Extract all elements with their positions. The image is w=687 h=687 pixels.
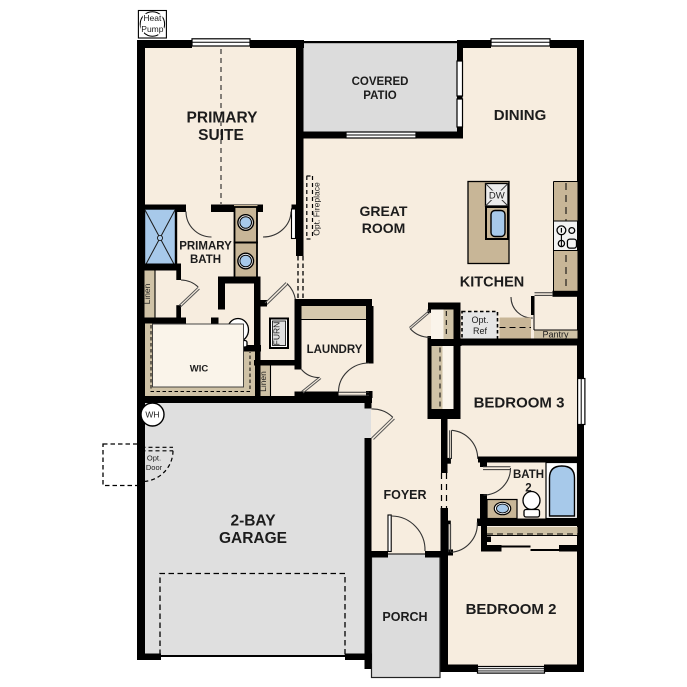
svg-text:LAUNDRY: LAUNDRY: [307, 344, 363, 356]
svg-text:ROOM: ROOM: [362, 220, 406, 236]
svg-text:BATH: BATH: [513, 469, 544, 481]
svg-text:PRIMARY: PRIMARY: [179, 241, 232, 253]
svg-text:BATH: BATH: [190, 254, 221, 266]
svg-text:BEDROOM 2: BEDROOM 2: [466, 601, 557, 618]
svg-text:PATIO: PATIO: [363, 90, 396, 102]
svg-text:FOYER: FOYER: [383, 488, 426, 502]
svg-text:Heat: Heat: [143, 13, 162, 23]
svg-text:Linen: Linen: [142, 283, 152, 304]
svg-text:WH: WH: [145, 410, 159, 420]
svg-text:DINING: DINING: [494, 107, 547, 124]
svg-text:KITCHEN: KITCHEN: [460, 275, 524, 291]
svg-text:Ref: Ref: [473, 326, 488, 336]
svg-text:2-BAY: 2-BAY: [230, 513, 276, 530]
svg-text:Opt.: Opt.: [471, 315, 488, 325]
svg-text:Pump: Pump: [141, 24, 163, 34]
svg-text:Pantry: Pantry: [542, 330, 569, 340]
svg-text:FURN: FURN: [272, 322, 282, 346]
svg-text:COVERED: COVERED: [352, 76, 409, 88]
svg-text:PRIMARY: PRIMARY: [187, 110, 259, 127]
svg-text:GARAGE: GARAGE: [219, 530, 287, 547]
svg-text:WIC: WIC: [190, 364, 209, 375]
svg-text:DW: DW: [489, 191, 505, 202]
svg-text:Opt. Fireplace: Opt. Fireplace: [312, 182, 322, 236]
svg-text:PORCH: PORCH: [382, 610, 427, 624]
svg-text:Linen: Linen: [258, 371, 268, 392]
svg-text:BEDROOM 3: BEDROOM 3: [474, 395, 565, 412]
svg-text:Opt.: Opt.: [147, 454, 161, 463]
svg-text:GREAT: GREAT: [360, 203, 408, 219]
svg-text:Door: Door: [146, 463, 163, 472]
